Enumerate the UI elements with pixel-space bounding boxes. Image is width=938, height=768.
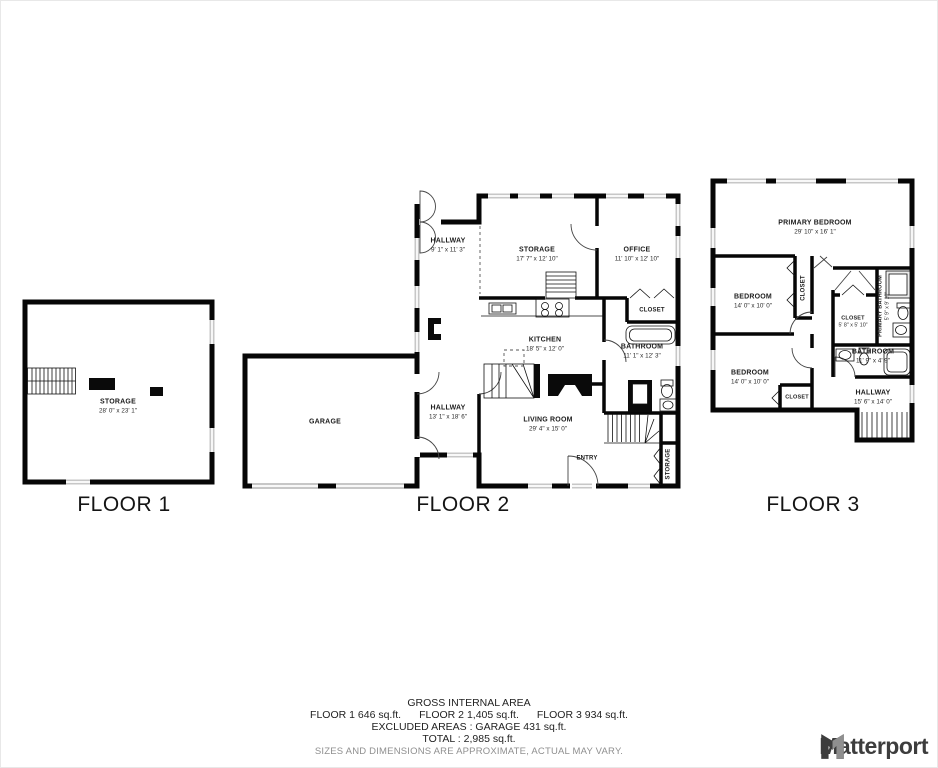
stove-icon (536, 299, 569, 317)
floor2-area: FLOOR 2 1,405 sq.ft. (419, 709, 519, 721)
floor-plan-page: { "floors": [ { "label": "FLOOR 1", "roo… (0, 0, 938, 768)
room-label-bathroom-f2: BATHROOM 11' 1" x 12' 3" (621, 344, 663, 361)
floor3-area: FLOOR 3 934 sq.ft. (537, 709, 628, 721)
room-label-hallway-upper-f2: HALLWAY 9' 1" x 11' 3" (431, 238, 466, 255)
room-label-primary-bedroom-f3: PRIMARY BEDROOM 29' 10" x 16' 1" (778, 220, 851, 237)
room-label-storage-f2: STORAGE 17' 7" x 12' 10" (516, 247, 558, 264)
room-label-closet-vert-f3: CLOSET (800, 275, 808, 301)
room-label-garage-f2: GARAGE (309, 419, 341, 428)
room-label-storage-closet-f2: STORAGE (665, 449, 673, 480)
stairs-icon (28, 368, 76, 394)
room-label-entry-f2: ENTRY (576, 455, 597, 463)
room-label-living-room-f2: LIVING ROOM 29' 4" x 15' 0" (523, 417, 572, 434)
floor1-title: FLOOR 1 (77, 493, 170, 517)
floor3-title: FLOOR 3 (766, 493, 859, 517)
toilet-icon (897, 303, 910, 308)
floor2-title: FLOOR 2 (416, 493, 509, 517)
floor1-area: FLOOR 1 646 sq.ft. (310, 709, 401, 721)
summary-floor-areas: FLOOR 1 646 sq.ft.FLOOR 2 1,405 sq.ft.FL… (0, 709, 938, 721)
summary-excluded: EXCLUDED AREAS : GARAGE 431 sq.ft. (0, 721, 938, 733)
room-label-closet-small-f3: CLOSET 5' 8" x 5' 10" (838, 315, 867, 328)
room-label-hallway-f3: HALLWAY 15' 6" x 14' 0" (854, 390, 892, 407)
bathroom-fixtures (626, 326, 676, 412)
floor-plan-drawing (0, 0, 938, 768)
room-label-bedroom-lower-f3: BEDROOM 14' 0" x 10' 0" (731, 370, 769, 387)
room-label-closet-lower-f3: CLOSET (785, 395, 809, 402)
fireplace-icon (428, 318, 592, 396)
room-label-primary-bathroom-f3: PRIMARY BATHROOM 5' 9" x 9' 10" (877, 275, 890, 337)
matterport-logo: Matterport (819, 733, 928, 760)
chimney-icon (89, 378, 163, 396)
toilet-icon (661, 380, 673, 386)
room-label-closet-f2: CLOSET (639, 307, 665, 315)
floor2-plan (245, 191, 678, 486)
window-icon (66, 320, 212, 482)
room-label-bedroom-upper-f3: BEDROOM 14' 0" x 10' 0" (734, 294, 772, 311)
walls (25, 302, 212, 482)
room-label-storage-f1: STORAGE 28' 0" x 23' 1" (99, 399, 137, 416)
room-label-hallway-lower-f2: HALLWAY 13' 1" x 18' 6" (429, 405, 467, 422)
door-gaps (417, 222, 604, 486)
stairs-icon (862, 412, 907, 438)
summary-total: TOTAL : 2,985 sq.ft. (0, 733, 938, 745)
room-label-office-f2: OFFICE 11' 10" x 12' 10" (615, 247, 660, 264)
summary-title: GROSS INTERNAL AREA (0, 697, 938, 709)
summary-disclaimer: SIZES AND DIMENSIONS ARE APPROXIMATE, AC… (0, 746, 938, 758)
area-summary: GROSS INTERNAL AREA FLOOR 1 646 sq.ft.FL… (0, 697, 938, 758)
room-label-kitchen-f2: KITCHEN 18' 5" x 12' 0" (526, 337, 564, 354)
matterport-m-icon (819, 733, 846, 760)
kitchen-counter (481, 299, 604, 366)
room-label-bathroom-f3: BATHROOM 11' 9" x 4' 9" (852, 349, 894, 366)
floor1-plan (25, 302, 212, 482)
